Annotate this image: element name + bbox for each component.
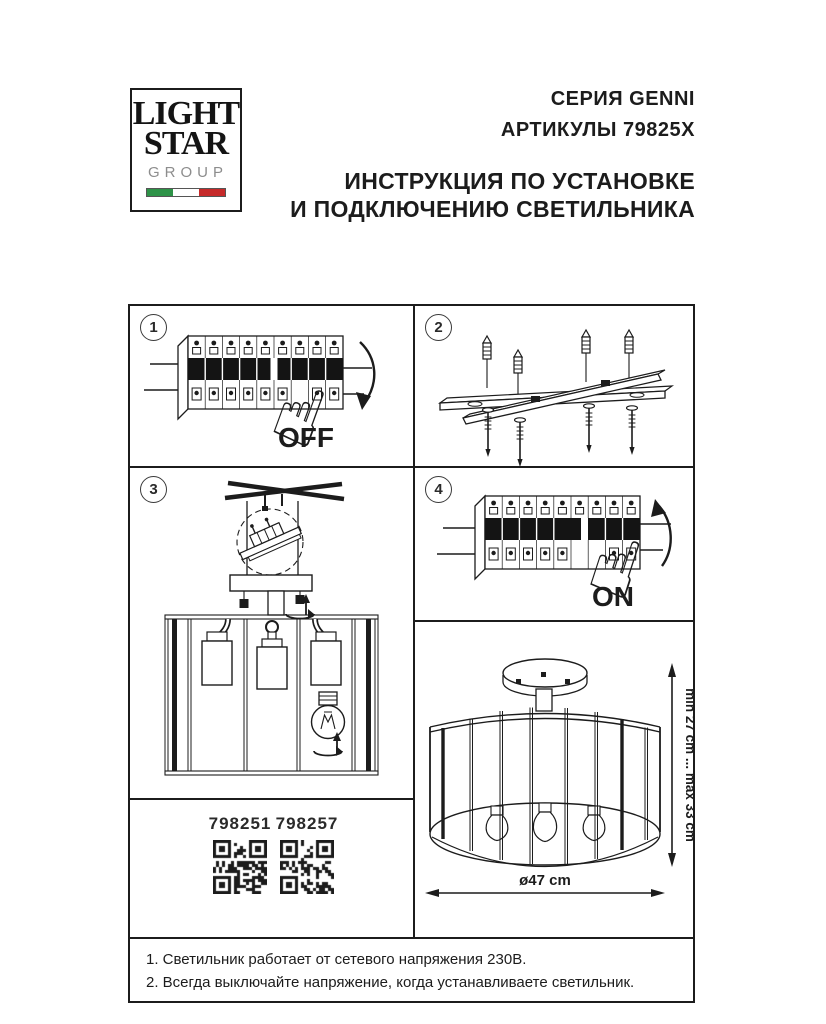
breaker-side: [475, 496, 485, 579]
socket-center: [257, 647, 287, 689]
brackets-drawing: [415, 306, 693, 466]
step-4-panel: 4 ☝ ON: [415, 468, 693, 620]
socket-right: [311, 641, 341, 685]
canopy-screw-3: [565, 679, 570, 684]
bracket-nut-1: [531, 396, 540, 402]
lamp-dimensions-panel: min 27 cm ... max 33 cm ø47 cm: [415, 622, 693, 933]
bracket-screws: [265, 494, 282, 508]
notes-box: 1. Светильник работает от сетевого напря…: [128, 937, 695, 1003]
arrow-down-curve: [360, 342, 374, 402]
breaker-on-drawing: ☝ ON: [415, 468, 693, 620]
instruction-sheet: LIGHT STAR GROUP СЕРИЯ GENNI АРТИКУЛЫ 79…: [0, 0, 826, 1024]
header-series-block: СЕРИЯ GENNI АРТИКУЛЫ 79825X: [501, 84, 695, 146]
left-dark-slat: [172, 619, 177, 771]
terminal-block-detail: [231, 507, 303, 563]
socket-left: [202, 641, 232, 685]
breaker-off-drawing: ☝ OFF: [130, 306, 412, 466]
step-2-panel: 2: [415, 306, 693, 466]
on-label: ON: [592, 581, 634, 612]
title-line-2: И ПОДКЛЮЧЕНИЮ СВЕТИЛЬНИКА: [290, 195, 695, 223]
right-dark-slat: [366, 619, 371, 771]
qr-code-right: [280, 840, 334, 894]
series-name: СЕРИЯ GENNI: [501, 84, 695, 115]
light-bulb: [312, 692, 345, 739]
height-range-label: min 27 cm ... max 33 cm: [683, 688, 693, 842]
step-3-panel: 3: [130, 468, 412, 798]
body-bottom-rail: [165, 771, 378, 775]
bracket-nut-2: [601, 380, 610, 386]
socket-cap-right: [316, 632, 336, 641]
note-2: 2. Всегда выключайте напряжение, когда у…: [130, 971, 693, 994]
bulb-right: [583, 806, 605, 841]
toggle-open-gap: [581, 518, 588, 540]
socket-cap-left: [207, 632, 227, 641]
assembly-drawing: [130, 468, 412, 798]
height-dimension: min 27 cm ... max 33 cm: [668, 663, 693, 867]
lamp-drawing: min 27 cm ... max 33 cm ø47 cm: [415, 622, 693, 933]
logo-word-group: GROUP: [132, 164, 240, 181]
qr-code-left: [213, 840, 267, 894]
canopy-plate: [230, 575, 312, 591]
bulb-center: [533, 803, 556, 842]
italian-flag-stripe: [146, 188, 226, 197]
article-number-right: 798257: [267, 814, 347, 834]
flag-green: [147, 189, 173, 196]
bulb-left: [486, 806, 508, 841]
canopy-stem: [268, 591, 284, 615]
step-1-panel: 1: [130, 306, 412, 466]
diameter-dimension: ø47 cm: [425, 872, 665, 897]
lightstar-logo: LIGHT STAR GROUP: [130, 88, 242, 212]
steps-grid: 1: [128, 304, 695, 937]
mounting-nut-left: [240, 599, 249, 608]
lamp-stem: [536, 689, 552, 711]
canopy-screw-1: [516, 679, 521, 684]
canopy-screw-2: [541, 672, 546, 677]
diameter-label: ø47 cm: [519, 872, 571, 889]
socket-cap-center: [262, 639, 282, 647]
flag-red: [199, 189, 225, 196]
toggle-open-gap: [271, 358, 278, 380]
articles-code: АРТИКУЛЫ 79825X: [501, 115, 695, 146]
logo-word-star: STAR: [132, 129, 240, 159]
flag-white: [173, 189, 199, 196]
articles-panel: 798251 798257: [130, 800, 412, 933]
off-label: OFF: [278, 422, 334, 453]
center-hook-ring: [266, 621, 278, 633]
page-title: ИНСТРУКЦИЯ ПО УСТАНОВКЕ И ПОДКЛЮЧЕНИЮ СВ…: [290, 167, 695, 223]
drum-top-rim: [430, 714, 660, 733]
breaker-side: [178, 336, 188, 419]
arrow-up-curve: [659, 506, 671, 566]
bracket-screw-head: [262, 506, 268, 511]
note-1: 1. Светильник работает от сетевого напря…: [130, 948, 693, 971]
title-line-1: ИНСТРУКЦИЯ ПО УСТАНОВКЕ: [290, 167, 695, 195]
